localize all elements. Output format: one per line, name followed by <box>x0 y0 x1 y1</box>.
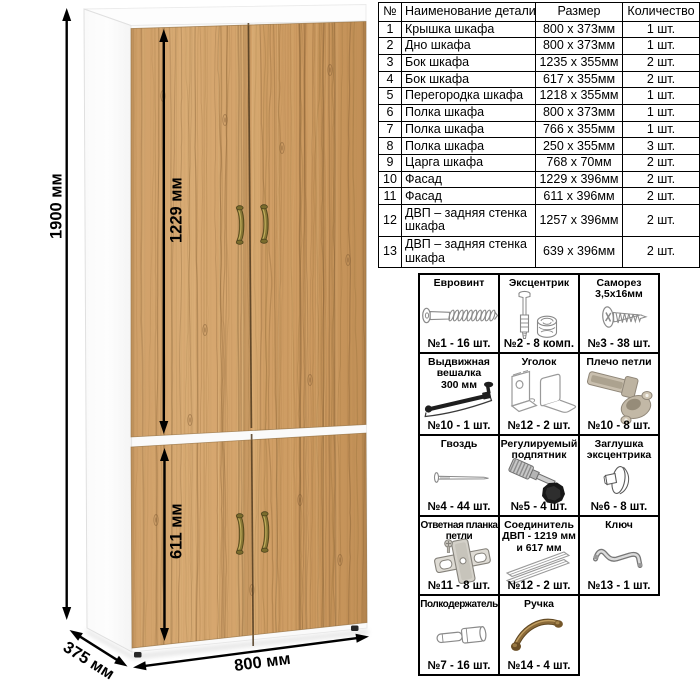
svg-text:1229 мм: 1229 мм <box>168 177 186 243</box>
svg-text:1900 мм: 1900 мм <box>48 173 66 239</box>
svg-text:611 мм: 611 мм <box>168 503 186 559</box>
